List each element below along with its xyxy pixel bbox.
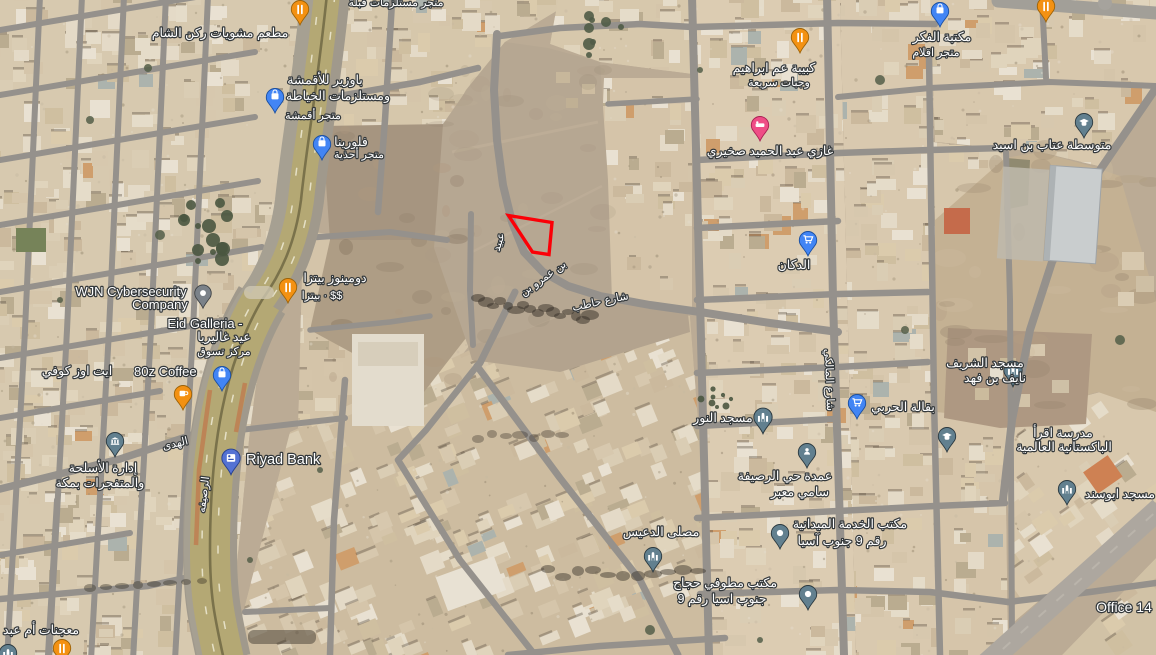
svg-text:مكتب الخدمة الميدانية: مكتب الخدمة الميدانية <box>793 517 907 531</box>
svg-text:ومستلزمات الخياطة: ومستلزمات الخياطة <box>286 89 390 104</box>
svg-text:الدكان: الدكان <box>778 258 811 272</box>
svg-text:مركز تسوق: مركز تسوق <box>197 346 251 358</box>
svg-text:رقم 9 جنوب آسيا: رقم 9 جنوب آسيا <box>798 532 887 549</box>
svg-text:متجر أقمشة: متجر أقمشة <box>285 108 341 122</box>
svg-text:مدرسة اقرأ: مدرسة اقرأ <box>1033 424 1093 441</box>
svg-text:دومينوز بيتزا: دومينوز بيتزا <box>303 271 367 286</box>
svg-text:معجنات أم عبد ال: معجنات أم عبد ال <box>0 621 79 638</box>
svg-text:إدارة الأسلحة: إدارة الأسلحة <box>69 459 138 476</box>
svg-text:مصلى الدعيس: مصلى الدعيس <box>623 525 700 540</box>
svg-text:بيتزا · $$: بيتزا · $$ <box>302 290 343 302</box>
svg-text:الباكستانية العالمية: الباكستانية العالمية <box>1016 440 1112 454</box>
svg-text:متجر مستلزمات قبلة: متجر مستلزمات قبلة <box>349 0 444 9</box>
svg-text:بقالة الحربي: بقالة الحربي <box>871 400 935 415</box>
svg-text:عمدة حي الرصيفة: عمدة حي الرصيفة <box>738 469 832 484</box>
svg-text:80z Coffee: 80z Coffee <box>134 364 197 379</box>
svg-text:غازي عبد الحميد صخيري: غازي عبد الحميد صخيري <box>707 144 834 159</box>
svg-text:عيد غاليريا: عيد غاليريا <box>197 330 250 345</box>
svg-text:نايف بن فهد: نايف بن فهد <box>964 371 1026 386</box>
svg-text:مكتبة الفكر: مكتبة الفكر <box>912 30 972 45</box>
svg-text:فلورينا: فلورينا <box>334 135 368 150</box>
svg-text:متجر أحذية: متجر أحذية <box>334 147 384 161</box>
svg-text:مسجد الشريف: مسجد الشريف <box>946 356 1024 371</box>
svg-text:Office 14: Office 14 <box>1096 599 1152 615</box>
svg-text:كبيبة عم ابراهيم: كبيبة عم ابراهيم <box>733 61 817 76</box>
svg-text:مسجد ابوسند: مسجد ابوسند <box>1085 487 1155 502</box>
svg-text:ايت اوز كوفي: ايت اوز كوفي <box>42 364 113 379</box>
svg-text:سامي معبر: سامي معبر <box>770 485 829 500</box>
svg-text:والمتفجرات بمكة: والمتفجرات بمكة <box>56 476 145 491</box>
svg-text:وجبات سريعة: وجبات سريعة <box>748 77 810 89</box>
svg-text:مسجد النور: مسجد النور <box>692 411 753 426</box>
svg-text:باوزير للأقمشة: باوزير للأقمشة <box>287 71 363 88</box>
svg-text:مطعم مشويات ركن الشام: مطعم مشويات ركن الشام <box>152 26 289 41</box>
svg-text:Riyad Bank: Riyad Bank <box>246 452 321 468</box>
svg-text:Eid Galleria -: Eid Galleria - <box>167 316 242 331</box>
svg-text:جنوب اسيا رقم 9: جنوب اسيا رقم 9 <box>678 592 767 607</box>
svg-text:Company: Company <box>132 297 188 312</box>
svg-text:مكتب مطوفي حجاج: مكتب مطوفي حجاج <box>673 576 777 591</box>
svg-text:شارع المالكي: شارع المالكي <box>822 349 836 412</box>
svg-text:متجر اقلام: متجر اقلام <box>912 47 959 59</box>
svg-text:متوسطة عتاب بن اسيد: متوسطة عتاب بن اسيد <box>993 138 1112 153</box>
